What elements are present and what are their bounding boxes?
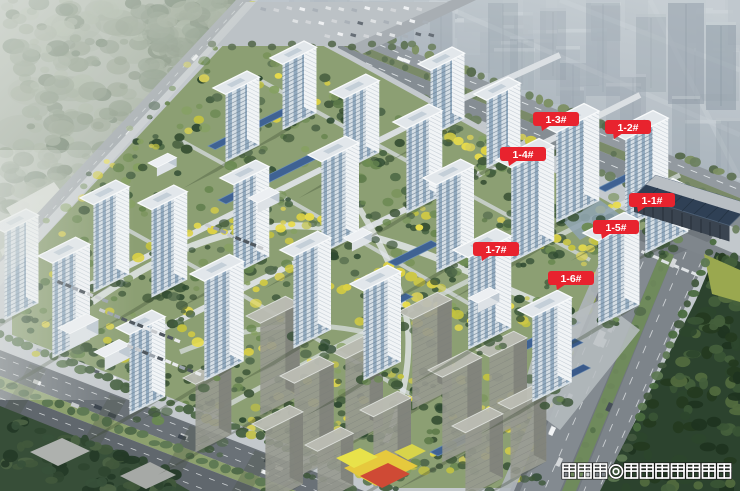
svg-text:1-1#: 1-1#	[641, 195, 662, 207]
svg-text:1-2#: 1-2#	[617, 122, 638, 134]
svg-text:1-5#: 1-5#	[605, 222, 626, 234]
svg-text:1-4#: 1-4#	[512, 149, 533, 161]
svg-text:1-6#: 1-6#	[560, 273, 581, 285]
svg-text:1-3#: 1-3#	[545, 114, 566, 126]
svg-text:1-7#: 1-7#	[485, 244, 506, 256]
